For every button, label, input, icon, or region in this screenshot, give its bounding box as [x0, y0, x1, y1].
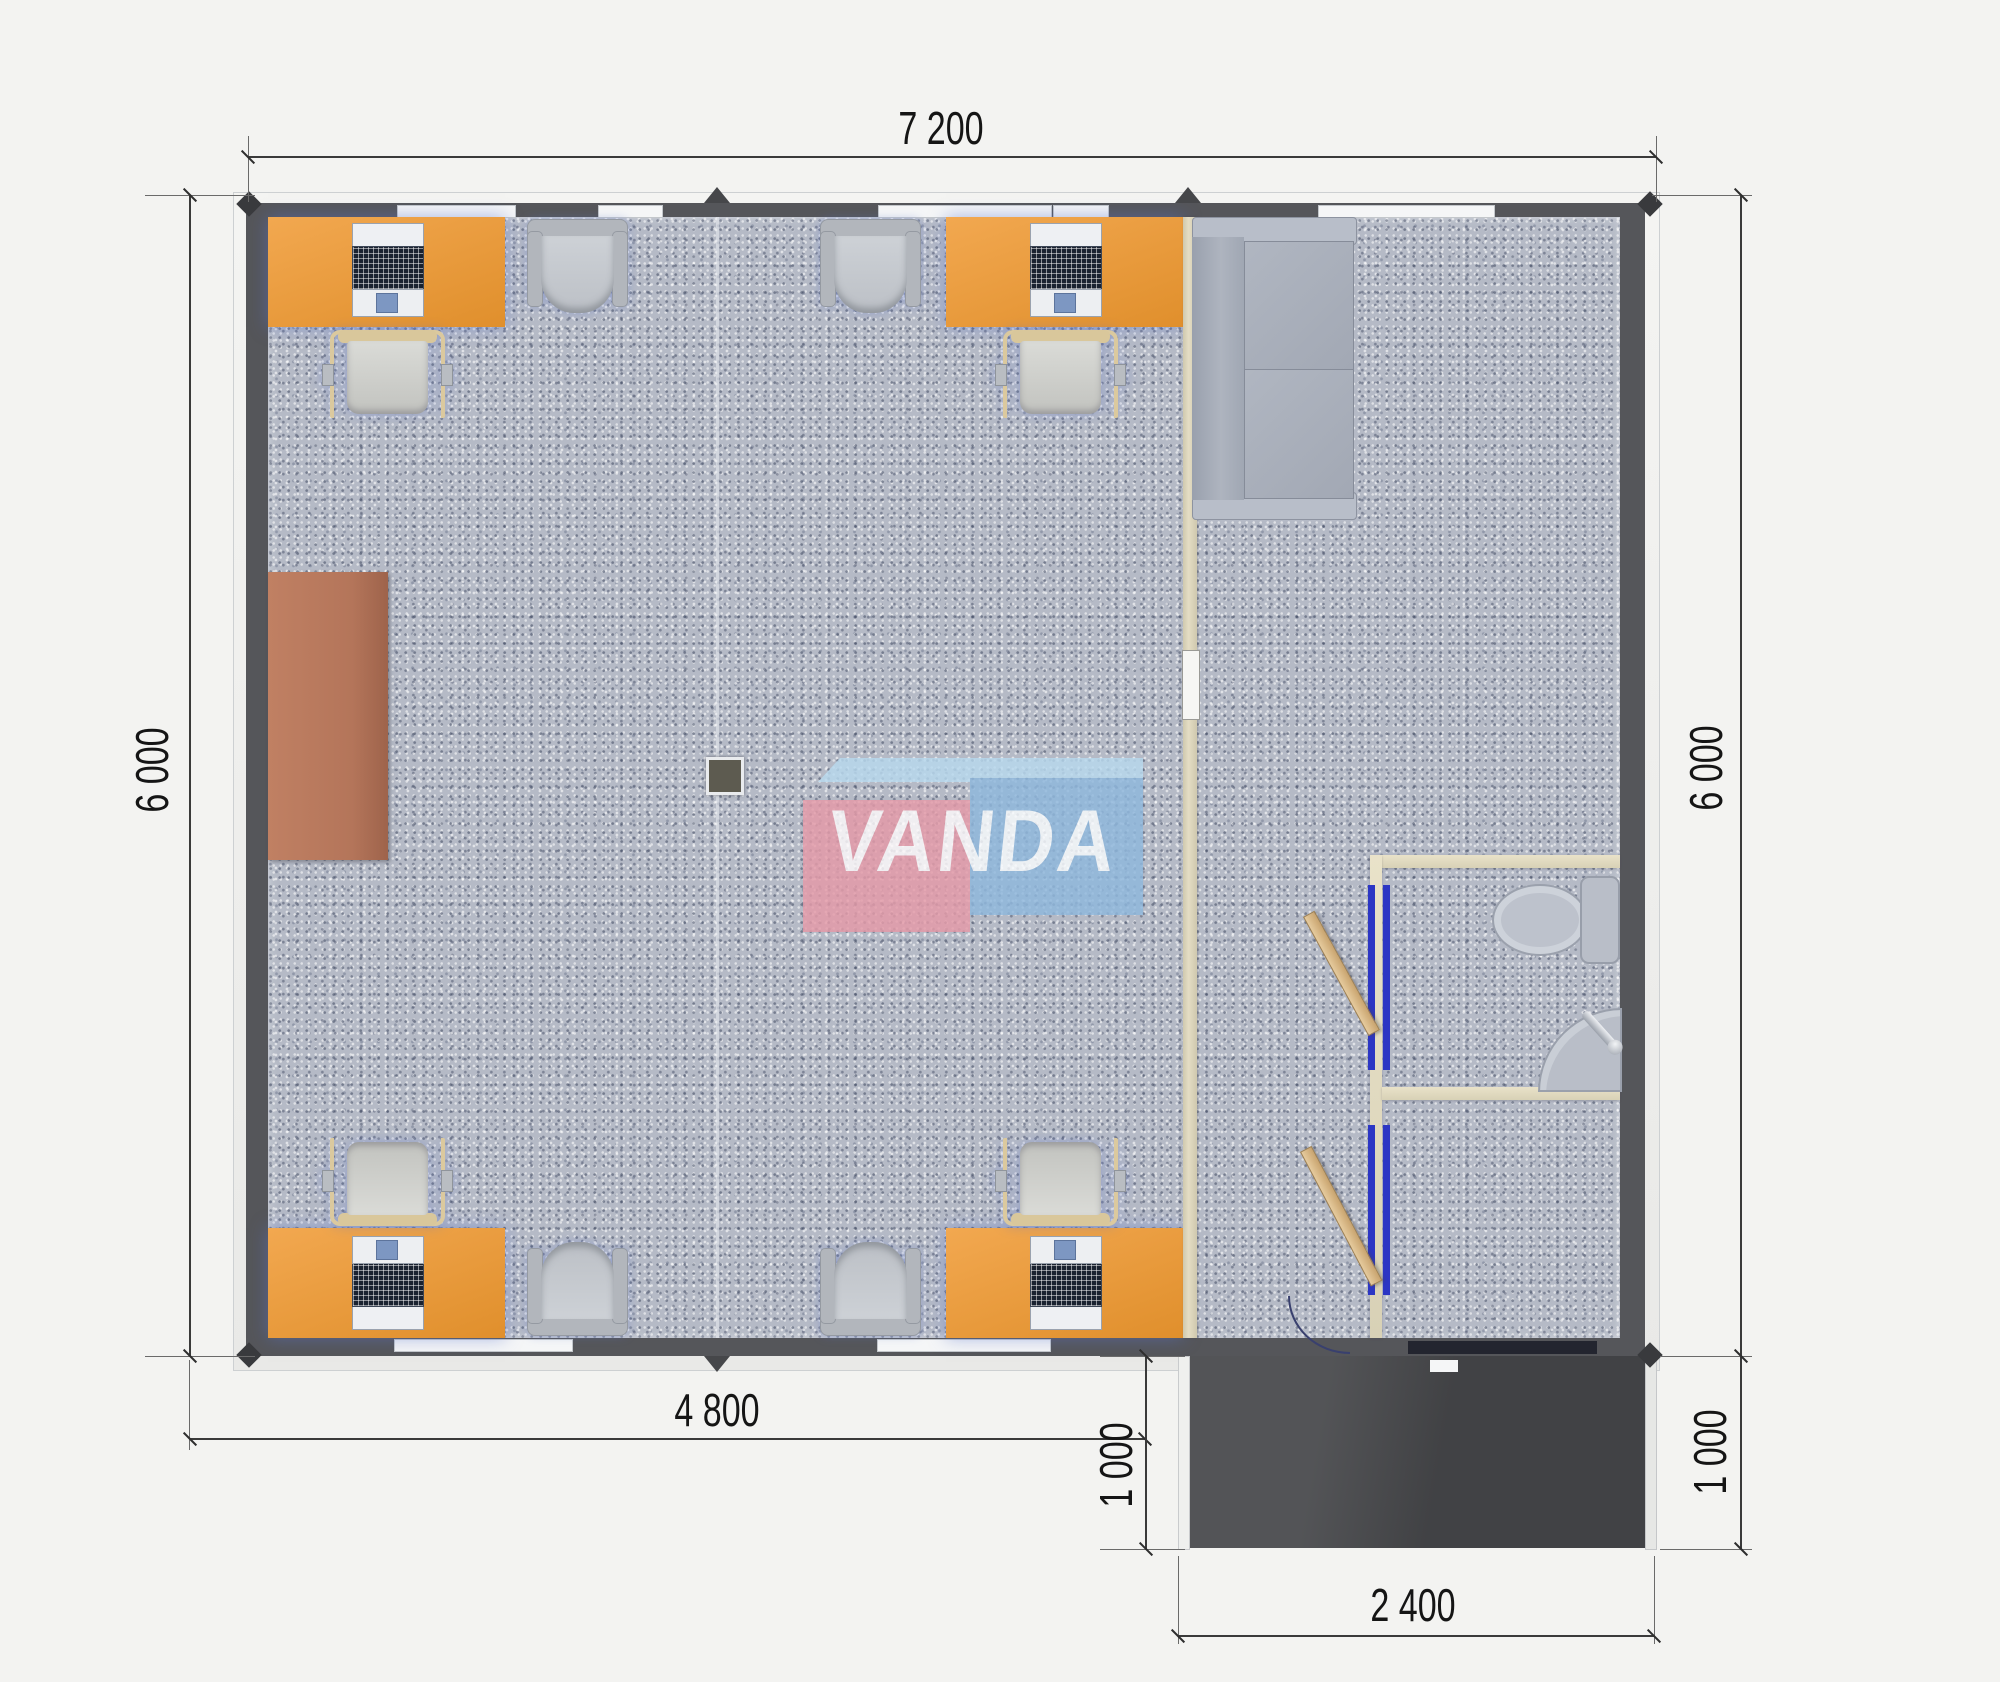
mouse-icon: [376, 293, 398, 313]
task-chair-icon: [330, 330, 445, 418]
keyboard-icon: [352, 1263, 424, 1307]
dimension-label-porch-depth-right: 1 000: [1687, 1409, 1733, 1494]
porch-edge: [1178, 1356, 1190, 1550]
door-frame-icon: [1383, 885, 1390, 1070]
dimension-label-porch-depth-left: 1 000: [1093, 1422, 1139, 1507]
extension-line: [1654, 1556, 1655, 1644]
dimension-line-porch-left: [1145, 1356, 1147, 1550]
porch-edge: [1645, 1356, 1657, 1550]
partition-door-icon: [1182, 650, 1200, 720]
dimension-line-right: [1740, 195, 1742, 1550]
extension-line: [1660, 1549, 1752, 1550]
door-threshold: [1430, 1360, 1458, 1372]
monitor-icon: [352, 1306, 424, 1330]
dimension-line-top: [248, 156, 1656, 158]
mouse-icon: [376, 1240, 398, 1260]
mouse-icon: [1054, 1240, 1076, 1260]
floor-outlet-box-icon: [706, 757, 744, 795]
entrance-porch: [1178, 1356, 1655, 1548]
monitor-icon: [1030, 223, 1102, 247]
office-desk-top-right: [946, 217, 1183, 327]
dimension-label-left-height: 6 000: [129, 727, 175, 812]
extension-line: [1178, 1556, 1179, 1644]
office-desk-top-left: [268, 217, 505, 327]
keyboard-icon: [352, 246, 424, 290]
desktop-computer-icon: [1030, 223, 1100, 317]
vanda-logo: VANDA: [800, 748, 1146, 938]
dimension-label-right-height: 6 000: [1683, 725, 1729, 810]
office-desk-bottom-right: [946, 1228, 1183, 1338]
extension-line: [1656, 136, 1657, 202]
dimension-line-porch-width: [1178, 1635, 1655, 1637]
extension-line: [1100, 1549, 1185, 1550]
extension-line: [248, 136, 249, 202]
bathroom-wall-top: [1370, 855, 1620, 868]
entrance-door-icon: [1408, 1341, 1597, 1354]
keyboard-icon: [1030, 246, 1102, 290]
floor-plan-canvas: VANDA 7 200 6 000 6 000 1 000 4 800 1 00…: [0, 0, 2000, 1682]
armchair-icon: [527, 1240, 628, 1336]
extension-line: [145, 1356, 255, 1357]
task-chair-icon: [330, 1138, 445, 1226]
extension-line: [1652, 195, 1752, 196]
desktop-computer-icon: [352, 223, 422, 317]
dimension-label-bottom-width: 4 800: [674, 1387, 759, 1433]
dimension-label-porch-width: 2 400: [1370, 1582, 1455, 1628]
desktop-computer-icon: [1030, 1236, 1100, 1330]
keyboard-icon: [1030, 1263, 1102, 1307]
seam-marker-icon: [704, 187, 730, 203]
extension-line: [145, 195, 255, 196]
dimension-line-bottom: [190, 1438, 1145, 1440]
sofa-icon: [1192, 217, 1355, 520]
monitor-icon: [352, 223, 424, 247]
armchair-icon: [820, 219, 921, 315]
armchair-icon: [820, 1240, 921, 1336]
extension-line: [1100, 1356, 1185, 1357]
mouse-icon: [1054, 293, 1076, 313]
storage-cabinet-icon: [268, 572, 388, 860]
desktop-computer-icon: [352, 1236, 422, 1330]
window-icon: [877, 1339, 1051, 1352]
extension-line: [1660, 1356, 1752, 1357]
toilet-icon: [1492, 876, 1620, 962]
dimension-line-left: [189, 195, 191, 1356]
armchair-icon: [527, 219, 628, 315]
window-icon: [598, 205, 663, 218]
door-frame-icon: [1368, 885, 1375, 1070]
seam-marker-icon: [704, 1356, 730, 1372]
window-icon: [394, 1339, 573, 1352]
task-chair-icon: [1003, 1138, 1118, 1226]
task-chair-icon: [1003, 330, 1118, 418]
monitor-icon: [1030, 1306, 1102, 1330]
office-desk-bottom-left: [268, 1228, 505, 1338]
door-frame-icon: [1383, 1125, 1390, 1295]
vanda-logo-text: VANDA: [819, 790, 1127, 892]
dimension-label-top-width: 7 200: [898, 105, 983, 151]
seam-marker-icon: [1175, 187, 1201, 203]
